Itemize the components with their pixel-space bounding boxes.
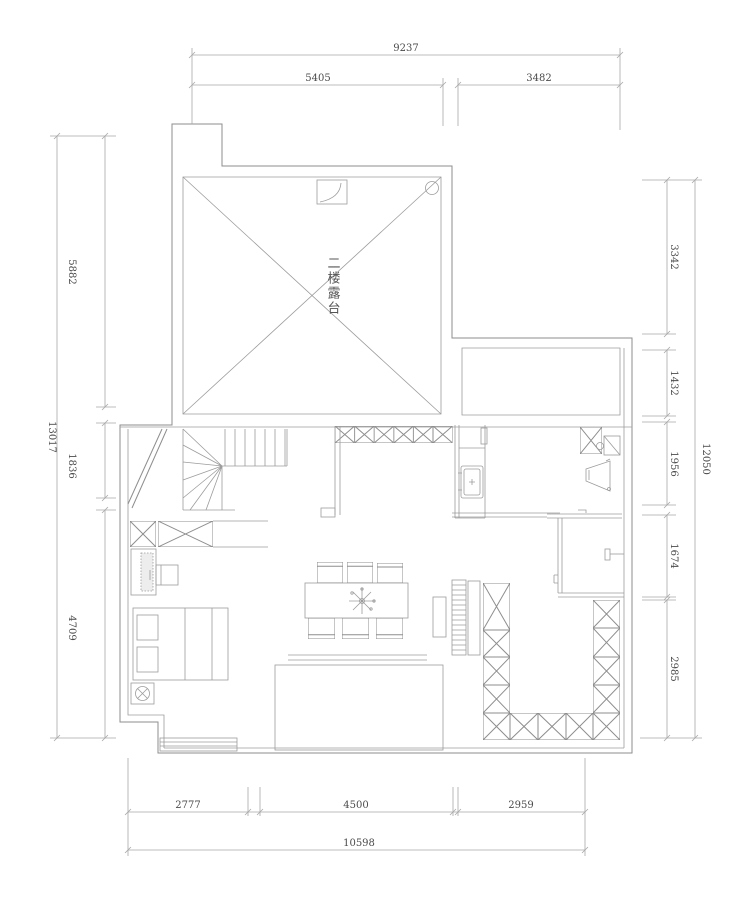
lower-roof-void (275, 655, 443, 750)
dim-label: 9237 (393, 43, 418, 54)
dim-label: 5882 (66, 259, 77, 284)
sink-icon (458, 466, 483, 498)
floor-drain-icon (131, 683, 154, 704)
cad-drawing-page: 二楼露台 (0, 0, 740, 924)
side-table (150, 565, 178, 585)
terrace-label: 二楼露台 (325, 256, 341, 316)
side-cabinet (433, 580, 480, 655)
dimension-left: 13017 5882 1836 4709 (46, 133, 116, 741)
dim-label: 4709 (66, 615, 77, 640)
entry-steps (160, 738, 237, 751)
terrace (183, 177, 441, 414)
bathroom (547, 510, 624, 597)
dim-label: 2985 (668, 656, 679, 681)
dim-label: 1432 (668, 370, 679, 395)
chandelier-icon (349, 588, 375, 614)
dim-label: 1836 (66, 453, 77, 478)
dim-label: 1956 (668, 451, 679, 476)
stairs (128, 429, 287, 510)
dining-chairs (308, 562, 403, 639)
dim-label: 13017 (46, 421, 57, 453)
bay-window-band (483, 583, 620, 740)
dim-label: 10598 (343, 838, 375, 849)
dim-label: 3342 (668, 244, 679, 269)
railing-band (321, 426, 453, 517)
roof-drain-icon (317, 180, 347, 204)
outer-walls (120, 124, 632, 753)
drain-circle-icon (426, 182, 439, 195)
floor-plan-canvas: 二楼露台 (0, 0, 740, 924)
dining-table (305, 583, 408, 618)
dim-label: 5405 (305, 73, 330, 84)
kitchen-counter (452, 425, 560, 518)
dim-label: 2959 (508, 800, 533, 811)
dim-label: 4500 (343, 800, 368, 811)
tv-icon (586, 459, 611, 491)
dimension-bottom: 2777 4500 2959 10598 (125, 758, 588, 856)
dim-label: 3482 (526, 73, 551, 84)
stair-angled-wall (128, 429, 167, 508)
dim-label: 2777 (175, 800, 200, 811)
sofa-daybed (133, 608, 228, 680)
dim-label: 12050 (700, 443, 711, 475)
window-band (130, 521, 268, 547)
dim-label: 1674 (668, 543, 679, 568)
dimension-top: 9237 5405 3482 (189, 43, 623, 130)
tv-cabinet (131, 549, 156, 595)
water-heater (580, 427, 602, 454)
door-handle-icon (605, 549, 624, 560)
dimension-right: 12050 3342 1432 1956 1674 2985 (640, 177, 711, 741)
top-right-room (462, 348, 620, 415)
